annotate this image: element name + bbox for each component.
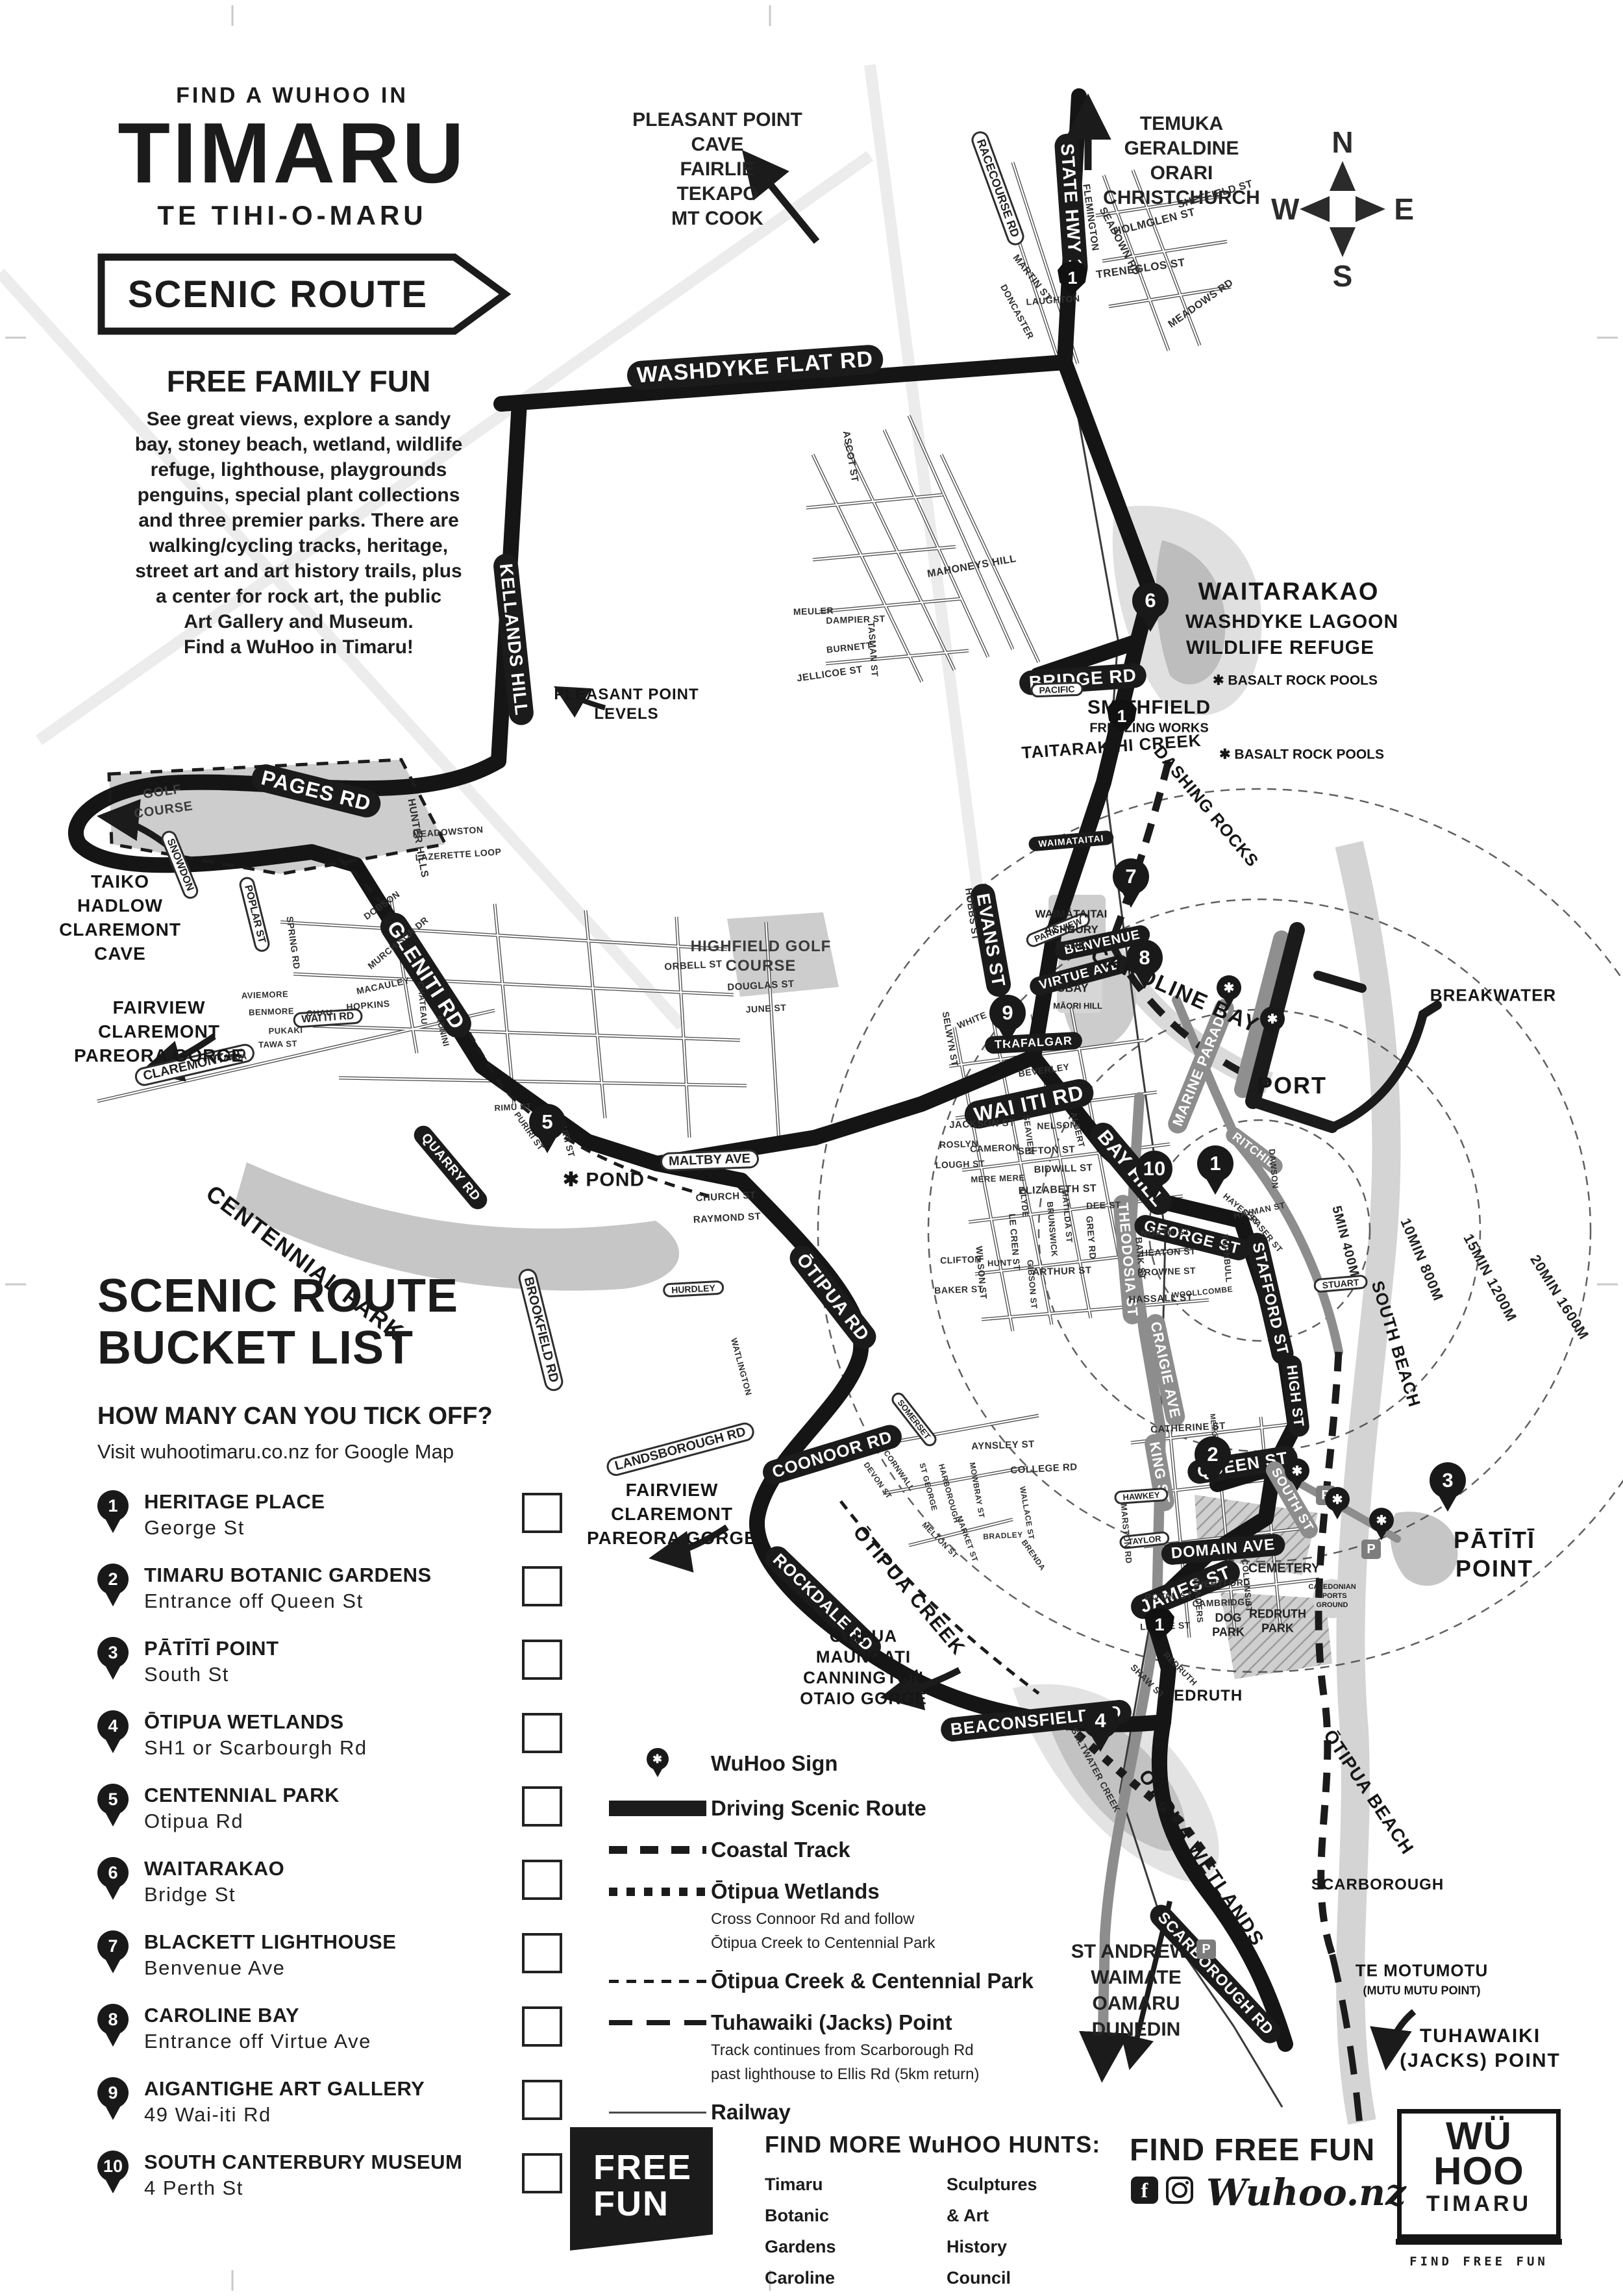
list-item-text: HERITAGE PLACEGeorge St xyxy=(144,1490,325,1540)
map-label: LEVELS xyxy=(594,705,658,723)
destination-name: PLEASANT POINT xyxy=(613,108,821,132)
map-label: CEMETERY xyxy=(1248,1562,1320,1577)
map-label: GROUND xyxy=(1317,1601,1348,1609)
destination-name: FAIRLIE xyxy=(613,157,821,182)
list-item-location: South St xyxy=(144,1663,279,1686)
more-hunts-block: FIND MORE WuHOO HUNTS: Timaru Botanic Ga… xyxy=(765,2131,1128,2296)
legend-icon-cell xyxy=(604,1980,711,1983)
map-label: WASHDYKE LAGOON xyxy=(1185,611,1398,633)
compass-north-label: N xyxy=(1332,125,1353,160)
map-marker-1[interactable]: 1 xyxy=(1197,1145,1233,1182)
map-label: DEE ST xyxy=(1086,1199,1121,1211)
legend-sublabel: Cross Connoor Rd and follow xyxy=(711,1909,1110,1929)
legend-item: Railway xyxy=(604,2100,1110,2125)
list-item-checkbox[interactable] xyxy=(522,1640,562,1680)
list-item-location: 4 Perth St xyxy=(144,2177,462,2200)
list-item-name: CENTENNIAL PARK xyxy=(144,1784,340,1807)
tuhawaiki-icon xyxy=(609,2020,706,2025)
hunt-name: Timaru Botanic Gardens xyxy=(765,2169,872,2262)
legend-label: Railway xyxy=(711,2100,791,2125)
list-item-pin: 8 xyxy=(97,2004,129,2035)
list-item-checkbox[interactable] xyxy=(522,1860,562,1900)
otipua-wetlands-icon xyxy=(609,1888,706,1896)
map-label: ROYAL ST xyxy=(1145,1590,1193,1603)
wuhoo-sign-pin: ✱ xyxy=(1285,1458,1309,1483)
map-label: SPORTS xyxy=(1317,1592,1346,1600)
list-item-name: PĀTĪTĪ POINT xyxy=(144,1637,279,1660)
list-item: 4ŌTIPUA WETLANDSSH1 or Scarbourgh Rd xyxy=(97,1710,562,1771)
map-marker-number: 7 xyxy=(1125,865,1136,888)
hunt-name: Council Playgrounds xyxy=(947,2262,1054,2296)
list-item-pin: 9 xyxy=(97,2077,129,2108)
legend-label: Driving Scenic Route xyxy=(711,1796,926,1821)
list-item-text: TIMARU BOTANIC GARDENSEntrance off Queen… xyxy=(144,1564,432,1613)
map-marker-number: 3 xyxy=(1442,1469,1453,1492)
list-item: 9AIGANTIGHE ART GALLERY49 Wai-iti Rd xyxy=(97,2077,562,2138)
map-marker-number: 8 xyxy=(1139,946,1150,969)
map-label: CLIFTON xyxy=(940,1254,982,1266)
scenic-route-label: SCENIC ROUTE xyxy=(96,252,460,336)
otipua-creek-icon xyxy=(609,1980,706,1983)
street-segment xyxy=(884,430,988,657)
legend-item: Ōtipua Wetlands xyxy=(604,1879,1110,1904)
list-item-checkbox[interactable] xyxy=(522,2153,562,2193)
map-marker-6[interactable]: 6 xyxy=(1132,582,1169,619)
destinations-northwest: PLEASANT POINTCAVEFAIRLIETEKAPOMT COOK xyxy=(613,108,821,231)
map-label: WILDLIFE REFUGE xyxy=(1186,637,1374,659)
intro-line: and three premier parks. There are xyxy=(71,508,526,533)
list-item-name: AIGANTIGHE ART GALLERY xyxy=(144,2077,425,2101)
map-label: MALTBY AVE xyxy=(660,1149,760,1171)
map-marker-number: 9 xyxy=(1002,1001,1013,1025)
map-label: ROSLYN xyxy=(939,1138,979,1150)
wuhoo-site-link[interactable]: Wuhoo.nz xyxy=(1206,2171,1406,2214)
list-item-text: ŌTIPUA WETLANDSSH1 or Scarbourgh Rd xyxy=(144,1710,367,1760)
map-label: BROWNE ST xyxy=(1137,1265,1196,1277)
map-marker-number: 1 xyxy=(1209,1152,1220,1175)
list-item-text: WAITARAKAOBridge St xyxy=(144,1857,284,1906)
list-item-location: Bridge St xyxy=(144,1883,284,1906)
facebook-icon[interactable]: f xyxy=(1131,2177,1158,2204)
map-label: ASHBURY xyxy=(1044,923,1098,936)
list-item-text: AIGANTIGHE ART GALLERY49 Wai-iti Rd xyxy=(144,2077,425,2127)
intro-line: bay, stoney beach, wetland, wildlife xyxy=(71,432,526,457)
legend-label: Tuhawaiki (Jacks) Point xyxy=(711,2010,952,2035)
map-label: WAITARAKAO xyxy=(1198,579,1380,606)
list-item-location: George St xyxy=(144,1516,325,1540)
free-fun-line1: FREE xyxy=(593,2149,713,2186)
list-item-name: TIMARU BOTANIC GARDENS xyxy=(144,1564,432,1587)
destinations-north: TEMUKAGERALDINEORARICHRISTCHURCH xyxy=(1094,112,1269,210)
map-label: PLEASANT POINT xyxy=(554,686,699,704)
map-label: (JACKS) POINT xyxy=(1400,2050,1561,2072)
map-label: BAKER ST xyxy=(934,1284,984,1296)
list-item: 7BLACKETT LIGHTHOUSEBenvenue Ave xyxy=(97,1930,562,1991)
street-segment xyxy=(280,922,727,949)
list-item-name: WAITARAKAO xyxy=(144,1857,284,1880)
map-label: RIMU ST xyxy=(494,1101,532,1113)
list-item: 8CAROLINE BAYEntrance off Virtue Ave xyxy=(97,2004,562,2064)
map-label: ✱ BASALT ROCK POOLS xyxy=(1213,673,1378,689)
list-item-name: CAROLINE BAY xyxy=(144,2004,371,2027)
compass-north-arrow-icon xyxy=(1330,161,1356,191)
intro-line: street art and art history trails, plus xyxy=(71,558,526,584)
map-label: PUKAKI xyxy=(268,1025,303,1036)
map-marker-number: 4 xyxy=(1095,1709,1106,1732)
map-marker-2[interactable]: 2 xyxy=(1195,1436,1231,1473)
map-marker-number: 10 xyxy=(1143,1157,1165,1180)
list-item-pin: 5 xyxy=(97,1784,129,1815)
list-item-pin: 6 xyxy=(97,1857,129,1888)
map-label: NORTH ST xyxy=(1141,1227,1190,1239)
hunts-column-2: Sculptures & Art HistoryCouncil Playgrou… xyxy=(947,2169,1054,2296)
map-label: JUNE ST xyxy=(745,1002,786,1014)
intro-line: walking/cycling tracks, heritage, xyxy=(71,533,526,558)
intro-line: Art Gallery and Museum. xyxy=(71,609,526,634)
map-label: SMITHFIELD xyxy=(1087,697,1211,719)
logo-hoo: HOO xyxy=(1402,2154,1556,2189)
map-label: SEFTON ST xyxy=(1018,1144,1076,1157)
compass-south-arrow-icon xyxy=(1330,227,1356,257)
list-item-text: BLACKETT LIGHTHOUSEBenvenue Ave xyxy=(144,1930,396,1980)
wuhoo-sign-icon: ✱ xyxy=(647,1748,669,1770)
map-label: PAREORA GORGE xyxy=(74,1045,244,1066)
legend-label: Ōtipua Creek & Centennial Park xyxy=(711,1969,1034,1993)
map-label: MERE MERE xyxy=(971,1173,1025,1184)
compass-east-label: E xyxy=(1394,192,1414,227)
map-label: REDRUTH xyxy=(1249,1608,1306,1621)
list-item: 6WAITARAKAOBridge St xyxy=(97,1857,562,1917)
list-item-pin: 3 xyxy=(97,1637,129,1668)
bucket-list-question: HOW MANY CAN YOU TICK OFF? xyxy=(97,1403,493,1430)
list-item-checkbox[interactable] xyxy=(522,1713,562,1753)
list-item-location: Entrance off Virtue Ave xyxy=(144,2030,371,2053)
legend-label: WuHoo Sign xyxy=(711,1751,838,1776)
list-item-pin: 1 xyxy=(97,1490,129,1521)
list-item-text: CAROLINE BAYEntrance off Virtue Ave xyxy=(144,2004,371,2053)
hunt-name: Sculptures & Art History xyxy=(947,2169,1054,2262)
map-label: CLAREMONT xyxy=(611,1504,733,1525)
list-item-pin: 10 xyxy=(97,2151,129,2182)
intro-text: See great views, explore a sandybay, sto… xyxy=(71,406,526,660)
legend-item: ✱WuHoo Sign xyxy=(604,1748,1110,1779)
destination-name: TEKAPO xyxy=(613,182,821,206)
list-item-checkbox[interactable] xyxy=(522,2080,562,2120)
map-marker-number: 6 xyxy=(1145,589,1156,612)
legend-label: Ōtipua Wetlands xyxy=(711,1879,880,1904)
map-label: CLAREMONT xyxy=(98,1021,220,1042)
brand-subtitle: TE TIHI-O-MARU xyxy=(84,200,500,231)
find-free-fun-heading: FIND FREE FUN xyxy=(1130,2132,1375,2168)
list-item-location: SH1 or Scarbourgh Rd xyxy=(144,1736,367,1760)
list-item: 2TIMARU BOTANIC GARDENSEntrance off Quee… xyxy=(97,1564,562,1624)
more-hunts-title: FIND MORE WuHOO HUNTS: xyxy=(765,2131,1128,2158)
hunt-name: Caroline Bay xyxy=(765,2262,872,2296)
wuhoo-sign-pin: ✱ xyxy=(1217,975,1241,1000)
driving-route-icon xyxy=(609,1801,706,1816)
hunts-column-1: Timaru Botanic GardensCaroline Bay xyxy=(765,2169,872,2296)
intro-line: See great views, explore a sandy xyxy=(71,406,526,432)
bucket-list-title-line2: BUCKET LIST xyxy=(97,1322,458,1374)
list-item-checkbox[interactable] xyxy=(522,1566,562,1606)
list-item-name: SOUTH CANTERBURY MUSEUM xyxy=(144,2151,462,2174)
list-item: 1HERITAGE PLACEGeorge St xyxy=(97,1490,562,1551)
list-item-location: Entrance off Queen St xyxy=(144,1590,432,1613)
compass-rose: N S W E xyxy=(1271,125,1414,293)
map-label: TAIKO xyxy=(91,871,149,892)
map-label: AVIEMORE xyxy=(242,989,289,1001)
list-item-text: PĀTĪTĪ POINTSouth St xyxy=(144,1637,279,1686)
brand-block: FIND A WUHOO IN TIMARU TE TIHI-O-MARU xyxy=(84,83,500,231)
list-item: 3PĀTĪTĪ POINTSouth St xyxy=(97,1637,562,1697)
map-label: CLAREMONT xyxy=(59,919,181,940)
legend-item: Coastal Track xyxy=(604,1838,1110,1862)
wuhoo-sign-pin: ✱ xyxy=(1260,1006,1285,1031)
compass-south-label: S xyxy=(1333,258,1353,293)
map-label: ARTHUR ST xyxy=(1032,1265,1092,1278)
legend-item: Ōtipua Creek & Centennial Park xyxy=(604,1969,1110,1993)
list-item-name: HERITAGE PLACE xyxy=(144,1490,325,1514)
intro-title: FREE FAMILY FUN xyxy=(71,364,526,399)
wuhoo-timaru-logo: WÜ HOO TIMARU xyxy=(1397,2109,1561,2239)
intro-line: Find a WuHoo in Timaru! xyxy=(71,634,526,660)
map-marker-9[interactable]: 9 xyxy=(989,995,1026,1031)
list-item-text: CENTENNIAL PARKOtipua Rd xyxy=(144,1784,340,1833)
map-label: HIGHFIELD GOLF xyxy=(691,938,832,956)
legend-sublabel: Track continues from Scarborough Rd xyxy=(711,2040,1110,2060)
legend-icon-cell xyxy=(604,1888,711,1896)
bucket-list-visit-link[interactable]: Visit wuhootimaru.co.nz for Google Map xyxy=(97,1440,454,1464)
intro-line: refuge, lighthouse, playgrounds xyxy=(71,457,526,482)
map-label: (MUTU MUTU POINT) xyxy=(1363,1984,1481,1998)
map-label: PĀTĪTĪ xyxy=(1454,1527,1535,1554)
compass-west-label: W xyxy=(1271,192,1299,227)
map-label: TE MOTUMOTU xyxy=(1356,1961,1489,1981)
map-label: PORT xyxy=(1257,1072,1327,1099)
legend-item: Driving Scenic Route xyxy=(604,1796,1110,1821)
map-label: MĀORI HILL xyxy=(1053,1001,1102,1011)
compass-west-arrow-icon xyxy=(1300,196,1330,222)
parking-badge: P xyxy=(1361,1540,1381,1559)
legend-icon-cell xyxy=(604,1801,711,1816)
logo-tagline: FIND FREE FUN xyxy=(1397,2254,1561,2269)
map-label: BREAKWATER xyxy=(1430,986,1556,1006)
map-label: PACIFIC xyxy=(1030,682,1084,698)
wuhoo-sign-pin: ✱ xyxy=(1369,1508,1394,1532)
map-label: TUHAWAIKI xyxy=(1420,2025,1541,2047)
map-label: HEATON ST xyxy=(1141,1246,1196,1258)
bucket-list-title: SCENIC ROUTE BUCKET LIST xyxy=(97,1270,458,1374)
map-label: ŌTIPUA xyxy=(830,1627,897,1647)
parking-badge: P xyxy=(1196,1940,1216,1959)
legend-sublabel: past lighthouse to Ellis Rd (5km return) xyxy=(711,2064,1110,2084)
map-marker-5[interactable]: 5 xyxy=(529,1104,565,1140)
map-marker-4[interactable]: 4 xyxy=(1082,1703,1119,1739)
map-label: PARK xyxy=(1056,939,1087,952)
list-item-pin: 4 xyxy=(97,1710,129,1741)
map-label: FAIRVIEW xyxy=(626,1480,719,1501)
map-label: CALEDONIAN xyxy=(1308,1583,1356,1591)
map-label: HUNT xyxy=(987,1258,1013,1268)
map-label: TAWA ST xyxy=(258,1038,297,1049)
map-marker-10[interactable]: 10 xyxy=(1136,1151,1172,1187)
map-marker-7[interactable]: 7 xyxy=(1113,858,1149,895)
map-label: POINT xyxy=(1456,1555,1533,1582)
map-label: WAIMĀTAITAI xyxy=(1035,908,1108,921)
map-label: LOUGH ST xyxy=(935,1158,985,1171)
destination-name: TEMUKA xyxy=(1094,112,1269,136)
map-label: BENMORE xyxy=(249,1006,294,1017)
list-item-checkbox[interactable] xyxy=(522,1493,562,1533)
intro-line: penguins, special plant collections xyxy=(71,482,526,508)
map-label: AYNSLEY ST xyxy=(971,1439,1035,1452)
map-label: OHAU xyxy=(306,1008,333,1018)
map-label: CAVE xyxy=(94,943,146,964)
destination-name: CAVE xyxy=(613,132,821,157)
legend-icon-cell: ✱ xyxy=(604,1748,711,1779)
list-item-name: BLACKETT LIGHTHOUSE xyxy=(144,1930,396,1954)
logo-underline xyxy=(1396,2239,1562,2245)
list-item-text: SOUTH CANTERBURY MUSEUM4 Perth St xyxy=(144,2151,462,2200)
map-label: ✱ POND xyxy=(563,1169,645,1192)
map-label: HADLOW xyxy=(77,895,163,916)
poster-page: FIND A WUHOO IN TIMARU TE TIHI-O-MARU SC… xyxy=(0,0,1623,2296)
compass-east-arrow-icon xyxy=(1356,196,1385,222)
list-item-location: Benvenue Ave xyxy=(144,1956,396,1980)
free-fun-line2: FUN xyxy=(593,2186,713,2222)
bucket-list: 1HERITAGE PLACEGeorge St2TIMARU BOTANIC … xyxy=(97,1490,562,2224)
map-label: CBAY xyxy=(1056,982,1088,995)
list-item-name: ŌTIPUA WETLANDS xyxy=(144,1710,367,1734)
map-label: JACKSON ST xyxy=(949,1117,1015,1131)
map-marker-8[interactable]: 8 xyxy=(1126,940,1163,976)
list-item: 10SOUTH CANTERBURY MUSEUM4 Perth St xyxy=(97,2151,562,2211)
legend-item: Tuhawaiki (Jacks) Point xyxy=(604,2010,1110,2035)
legend-label: Coastal Track xyxy=(711,1838,850,1862)
legend-sublabel: Ōtipua Creek to Centennial Park xyxy=(711,1933,1110,1953)
logo-timaru: TIMARU xyxy=(1402,2191,1556,2217)
street-segment xyxy=(909,416,1013,649)
page-title: TIMARU xyxy=(84,108,500,199)
intro-block: FREE FAMILY FUN See great views, explore… xyxy=(71,364,526,660)
list-item-checkbox[interactable] xyxy=(522,2006,562,2047)
railway-icon xyxy=(609,2112,706,2114)
map-legend: ✱WuHoo SignDriving Scenic RouteCoastal T… xyxy=(604,1748,1110,2141)
map-label: FAIRVIEW xyxy=(113,997,206,1018)
map-label: MAUNGATI xyxy=(816,1647,911,1667)
instagram-icon[interactable] xyxy=(1166,2177,1193,2204)
list-item-pin: 7 xyxy=(97,1930,129,1962)
legend-icon-cell xyxy=(604,2020,711,2025)
map-label: ✱ BASALT ROCK POOLS xyxy=(1219,747,1384,763)
legend-icon-cell xyxy=(604,2112,711,2114)
coastal-track-icon xyxy=(609,1846,706,1854)
map-marker-number: 5 xyxy=(541,1110,552,1134)
list-item-pin: 2 xyxy=(97,1564,129,1595)
map-label: PAREORA GORGE xyxy=(587,1528,757,1549)
list-item-location: Otipua Rd xyxy=(144,1810,340,1833)
map-marker-3[interactable]: 3 xyxy=(1430,1462,1466,1499)
list-item-checkbox[interactable] xyxy=(522,1933,562,1973)
destination-name: MT COOK xyxy=(613,206,821,231)
list-item-location: 49 Wai-iti Rd xyxy=(144,2103,425,2127)
scenic-route-sign: SCENIC ROUTE xyxy=(96,252,512,336)
free-fun-badge: FREE FUN xyxy=(570,2127,713,2251)
legend-icon-cell xyxy=(604,1846,711,1854)
social-icons: f xyxy=(1131,2177,1193,2204)
map-label: SCARBOROUGH xyxy=(1311,1876,1444,1894)
map-label: OTAIO GORGE xyxy=(800,1689,926,1709)
map-label: PARK xyxy=(1212,1626,1245,1640)
intro-line: a center for rock art, the public xyxy=(71,584,526,609)
bucket-list-title-line1: SCENIC ROUTE xyxy=(97,1270,458,1322)
logo-wu: WÜ xyxy=(1402,2119,1556,2154)
destination-name: GERALDINE xyxy=(1094,136,1269,161)
list-item-checkbox[interactable] xyxy=(522,1786,562,1827)
map-label: BIDWILL ST xyxy=(1034,1162,1093,1175)
map-label: CANNINGTON xyxy=(803,1668,924,1688)
map-marker-number: 2 xyxy=(1207,1443,1218,1466)
map-label: REDRUTH xyxy=(1162,1687,1243,1705)
map-label: COURSE xyxy=(726,957,797,975)
list-item: 5CENTENNIAL PARKOtipua Rd xyxy=(97,1784,562,1844)
map-label: PARK xyxy=(1261,1622,1294,1636)
wuhoo-sign-pin: ✱ xyxy=(1325,1487,1350,1512)
map-label: DOG xyxy=(1215,1612,1241,1625)
